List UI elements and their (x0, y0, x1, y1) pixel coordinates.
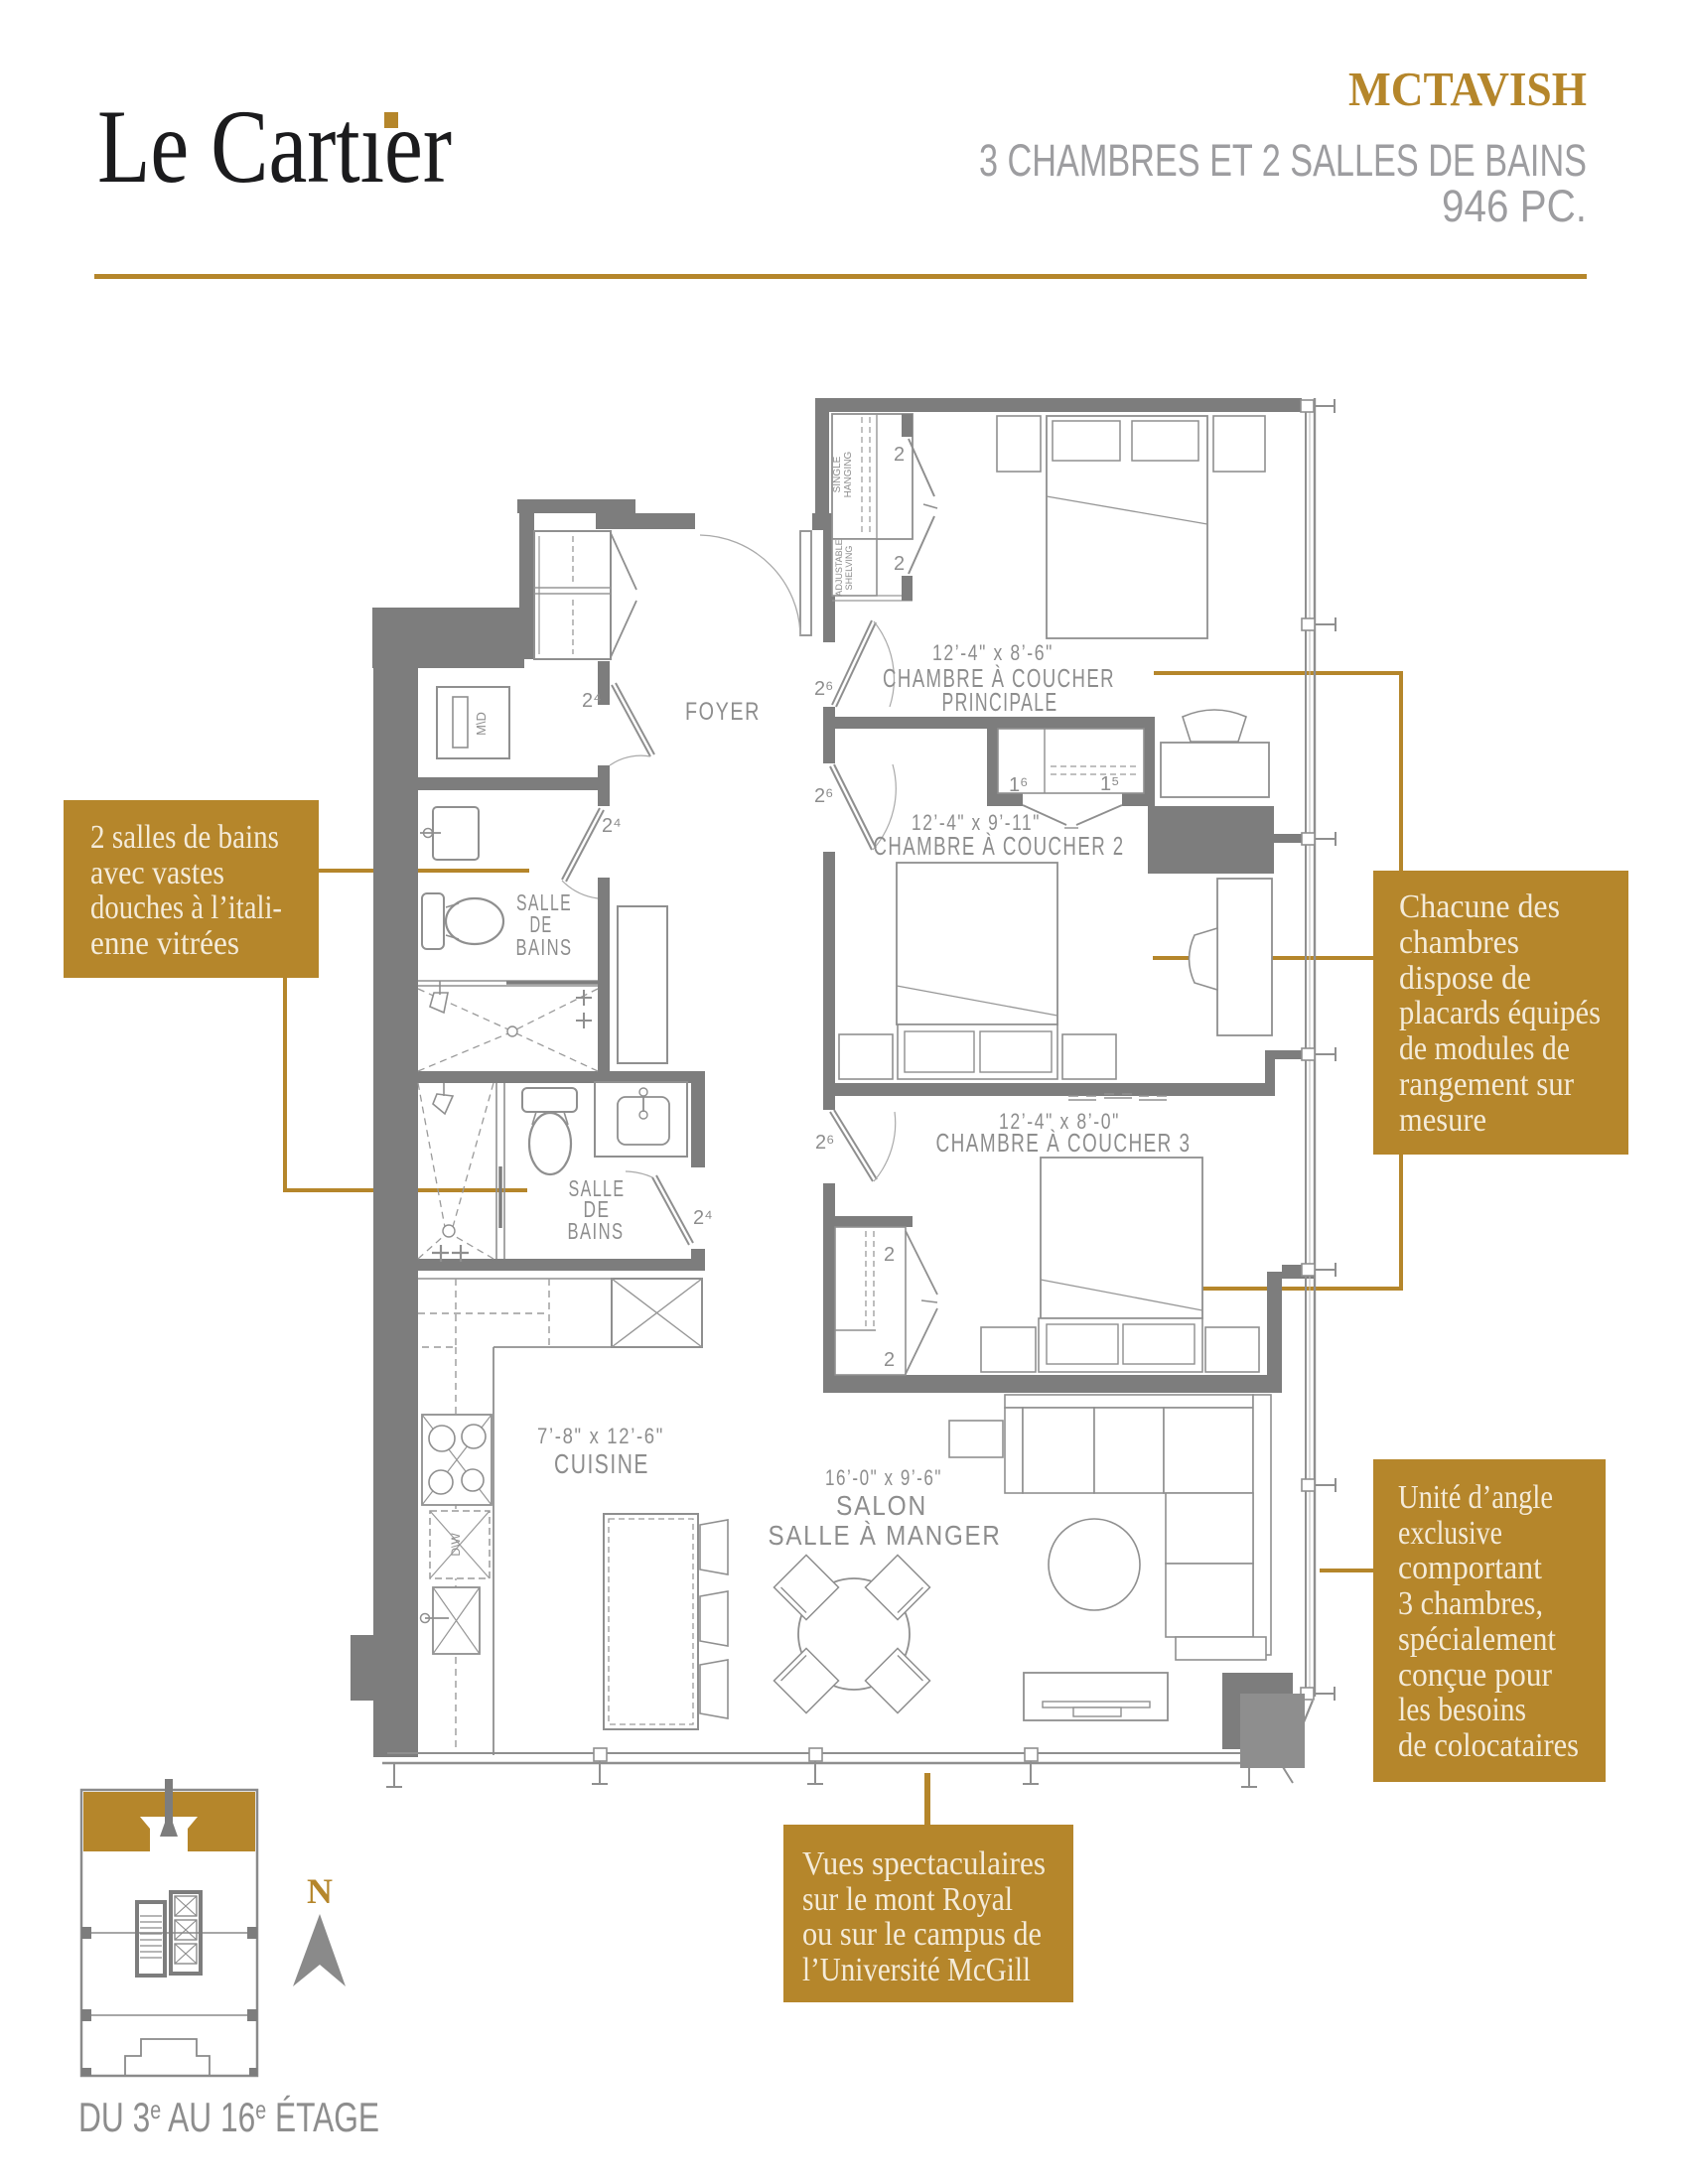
svg-text:SALLE À MANGER: SALLE À MANGER (769, 1520, 1002, 1551)
svg-text:CHAMBRE À COUCHER 2: CHAMBRE À COUCHER 2 (874, 831, 1125, 861)
svg-text:Vues spectaculaires: Vues spectaculaires (802, 1845, 1046, 1882)
svg-text:2: 2 (894, 553, 905, 575)
svg-text:SINGLE: SINGLE (832, 456, 843, 492)
svg-text:sur le mont Royal: sur le mont Royal (802, 1881, 1013, 1918)
svg-text:FOYER: FOYER (685, 698, 761, 726)
svg-text:comportant: comportant (1398, 1550, 1543, 1586)
svg-text:Chacune des: Chacune des (1399, 888, 1560, 925)
svg-text:3 chambres,: 3 chambres, (1398, 1585, 1543, 1622)
svg-text:rangement sur: rangement sur (1399, 1066, 1575, 1103)
svg-text:12’-4" x 8’-6": 12’-4" x 8’-6" (932, 640, 1054, 665)
svg-text:946 PC.: 946 PC. (1442, 181, 1587, 231)
svg-text:BAINS: BAINS (516, 934, 573, 960)
svg-text:2⁶: 2⁶ (814, 785, 833, 807)
svg-text:ADJUSTABLE: ADJUSTABLE (834, 539, 844, 596)
svg-text:2⁶: 2⁶ (814, 678, 833, 700)
svg-text:HANGING: HANGING (843, 451, 854, 497)
svg-text:conçue pour: conçue pour (1398, 1657, 1553, 1694)
svg-text:2: 2 (884, 1349, 895, 1371)
svg-text:avec vastes: avec vastes (90, 855, 224, 891)
svg-text:1⁶: 1⁶ (1009, 774, 1028, 796)
svg-text:exclusive: exclusive (1398, 1515, 1502, 1552)
svg-text:spécialement: spécialement (1398, 1621, 1556, 1658)
svg-text:CHAMBRE À COUCHER 3: CHAMBRE À COUCHER 3 (936, 1128, 1192, 1158)
svg-text:16’-0" x 9’-6": 16’-0" x 9’-6" (825, 1465, 942, 1490)
svg-text:les besoins: les besoins (1398, 1692, 1526, 1728)
svg-text:DU 3e AU 16e ÉTAGE: DU 3e AU 16e ÉTAGE (78, 2094, 379, 2140)
svg-text:3 CHAMBRES ET 2 SALLES DE BAIN: 3 CHAMBRES ET 2 SALLES DE BAINS (979, 135, 1587, 186)
svg-text:mesure: mesure (1399, 1102, 1486, 1139)
svg-text:placards équipés: placards équipés (1399, 995, 1601, 1031)
svg-text:2⁴: 2⁴ (693, 1207, 713, 1229)
svg-text:2⁴: 2⁴ (602, 815, 622, 837)
svg-text:enne vitrées: enne vitrées (90, 925, 239, 962)
svg-text:M\D: M\D (474, 712, 489, 736)
svg-text:7’-8" x 12’-6": 7’-8" x 12’-6" (537, 1424, 664, 1448)
svg-text:dispose de: dispose de (1399, 960, 1531, 997)
svg-text:SALON: SALON (836, 1490, 927, 1521)
svg-text:l’Université McGill: l’Université McGill (802, 1952, 1031, 1988)
svg-text:1⁵: 1⁵ (1100, 773, 1119, 795)
svg-text:de modules de: de modules de (1399, 1030, 1570, 1067)
svg-text:2: 2 (884, 1244, 895, 1266)
svg-text:N: N (307, 1871, 333, 1911)
svg-text:de colocataires: de colocataires (1398, 1727, 1579, 1764)
svg-text:PRINCIPALE: PRINCIPALE (942, 687, 1058, 717)
svg-text:ou sur le campus de: ou sur le campus de (802, 1916, 1042, 1953)
svg-text:CUISINE: CUISINE (554, 1448, 649, 1479)
svg-text:Unité d’angle: Unité d’angle (1398, 1479, 1553, 1516)
svg-text:2⁴: 2⁴ (582, 690, 602, 712)
svg-text:2⁶: 2⁶ (815, 1132, 834, 1154)
svg-text:D\W: D\W (449, 1533, 463, 1557)
svg-text:Le Cartıer: Le Cartıer (97, 88, 452, 205)
svg-text:MCTAVISH: MCTAVISH (1348, 62, 1587, 116)
svg-text:douches à l’itali-: douches à l’itali- (90, 889, 282, 926)
svg-text:2: 2 (894, 444, 905, 466)
svg-text:BAINS: BAINS (568, 1218, 625, 1244)
svg-text:chambres: chambres (1399, 924, 1519, 961)
svg-text:SHELVING: SHELVING (844, 546, 854, 591)
svg-text:2 salles de bains: 2 salles de bains (90, 819, 279, 856)
